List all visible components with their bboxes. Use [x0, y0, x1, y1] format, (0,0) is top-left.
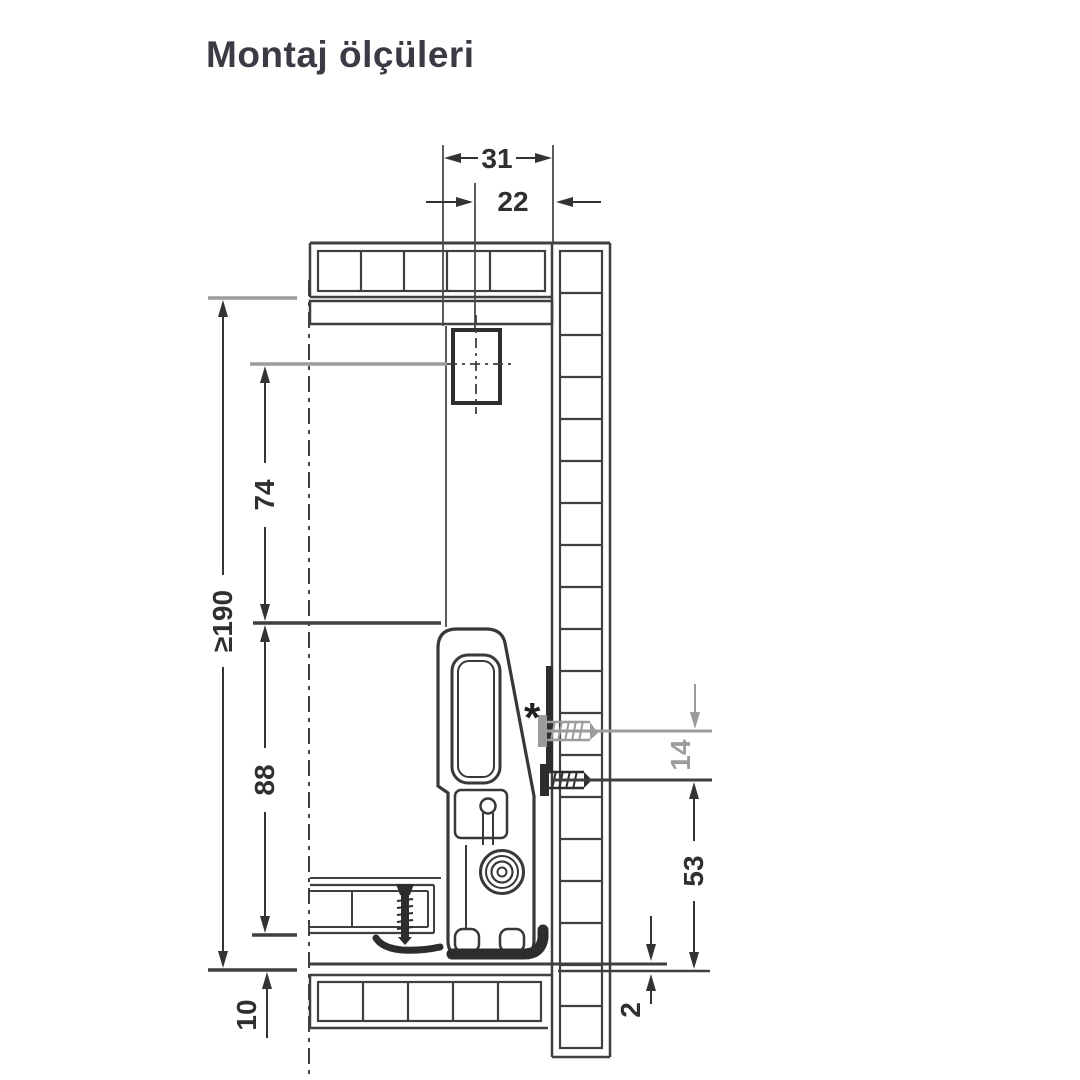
- top-rail: [310, 301, 552, 324]
- mounting-diagram: * 31 22: [0, 0, 1080, 1080]
- front-bracket: [250, 315, 511, 414]
- drawer-bottom-panel: [310, 878, 441, 933]
- drawer-bottom-screw-icon: [376, 884, 440, 950]
- page: Montaj ölçüleri: [0, 0, 1080, 1080]
- svg-text:14: 14: [665, 739, 696, 771]
- rear-bracket-bar: [546, 666, 553, 772]
- svg-text:31: 31: [481, 143, 512, 174]
- dim-14: 14: [665, 684, 700, 771]
- dim-31: 31: [444, 143, 552, 174]
- dim-10: 10: [231, 972, 272, 1038]
- footnote-asterisk: *: [524, 694, 541, 741]
- dim-190: ≥190: [207, 300, 238, 968]
- svg-text:88: 88: [249, 764, 280, 795]
- svg-text:53: 53: [678, 855, 709, 886]
- bottom-panel: [310, 975, 552, 1028]
- svg-text:2: 2: [615, 1002, 646, 1018]
- side-panel: [552, 243, 610, 1057]
- svg-text:10: 10: [231, 999, 262, 1030]
- dim-22: 22: [426, 186, 601, 217]
- svg-text:74: 74: [249, 479, 280, 511]
- svg-text:22: 22: [497, 186, 528, 217]
- svg-text:≥190: ≥190: [207, 590, 238, 652]
- drawer-side-profile: [438, 629, 534, 955]
- dim-2: 2: [615, 916, 656, 1018]
- dim-88: 88: [249, 625, 280, 933]
- dim-74: 74: [249, 366, 280, 621]
- dim-53: 53: [678, 782, 709, 969]
